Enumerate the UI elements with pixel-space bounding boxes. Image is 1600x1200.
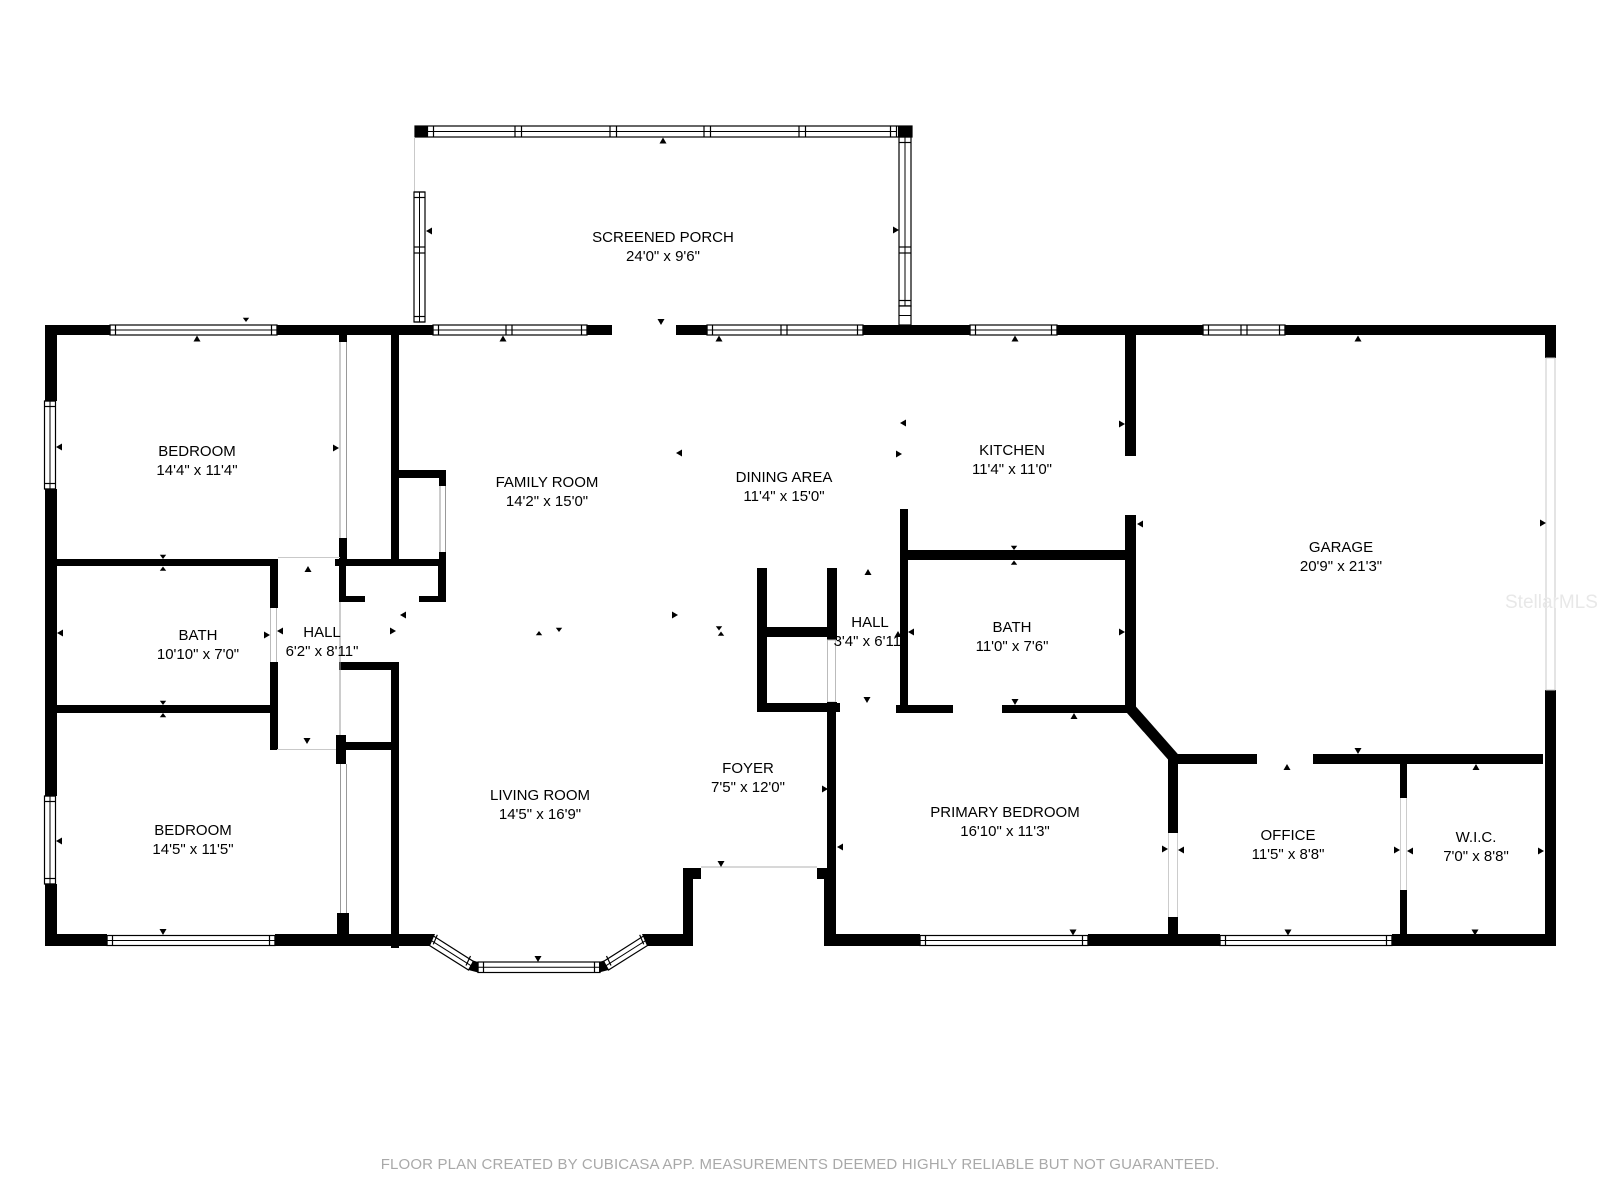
svg-text:GARAGE: GARAGE	[1309, 539, 1373, 556]
svg-text:16'10" x 11'3": 16'10" x 11'3"	[960, 823, 1050, 840]
svg-text:LIVING ROOM: LIVING ROOM	[490, 787, 590, 804]
svg-text:7'0" x 8'8": 7'0" x 8'8"	[1443, 848, 1509, 865]
svg-text:KITCHEN: KITCHEN	[979, 442, 1045, 459]
svg-text:24'0" x 9'6": 24'0" x 9'6"	[626, 248, 700, 265]
svg-text:StellarMLS: StellarMLS	[1505, 592, 1598, 613]
svg-text:SCREENED PORCH: SCREENED PORCH	[592, 229, 734, 246]
svg-text:11'4" x 11'0": 11'4" x 11'0"	[972, 461, 1052, 478]
svg-text:W.I.C.: W.I.C.	[1456, 829, 1497, 846]
svg-text:DINING AREA: DINING AREA	[736, 469, 833, 486]
svg-text:FOYER: FOYER	[722, 760, 774, 777]
svg-text:14'4" x 11'4": 14'4" x 11'4"	[156, 462, 237, 479]
svg-text:14'5" x 16'9": 14'5" x 16'9"	[499, 806, 581, 823]
svg-text:HALL: HALL	[303, 624, 341, 641]
svg-text:11'4" x 15'0": 11'4" x 15'0"	[743, 488, 824, 505]
svg-text:FLOOR PLAN CREATED BY CUBICASA: FLOOR PLAN CREATED BY CUBICASA APP. MEAS…	[381, 1156, 1220, 1173]
svg-text:BEDROOM: BEDROOM	[154, 822, 232, 839]
svg-text:14'5" x 11'5": 14'5" x 11'5"	[152, 841, 233, 858]
svg-text:FAMILY ROOM: FAMILY ROOM	[496, 474, 599, 491]
svg-text:7'5" x 12'0": 7'5" x 12'0"	[711, 779, 785, 796]
svg-text:3'4" x 6'11": 3'4" x 6'11"	[834, 633, 907, 650]
svg-text:BATH: BATH	[993, 619, 1032, 636]
svg-text:PRIMARY BEDROOM: PRIMARY BEDROOM	[930, 804, 1079, 821]
svg-text:10'10" x 7'0": 10'10" x 7'0"	[157, 646, 239, 663]
svg-text:OFFICE: OFFICE	[1261, 827, 1316, 844]
svg-text:HALL: HALL	[851, 614, 889, 631]
svg-text:11'5" x 8'8": 11'5" x 8'8"	[1252, 846, 1325, 863]
svg-text:BEDROOM: BEDROOM	[158, 443, 236, 460]
svg-text:BATH: BATH	[179, 627, 218, 644]
svg-text:11'0" x 7'6": 11'0" x 7'6"	[976, 638, 1049, 655]
svg-text:20'9" x 21'3": 20'9" x 21'3"	[1300, 558, 1382, 575]
svg-text:6'2" x 8'11": 6'2" x 8'11"	[286, 643, 359, 660]
svg-text:14'2" x 15'0": 14'2" x 15'0"	[506, 493, 588, 510]
